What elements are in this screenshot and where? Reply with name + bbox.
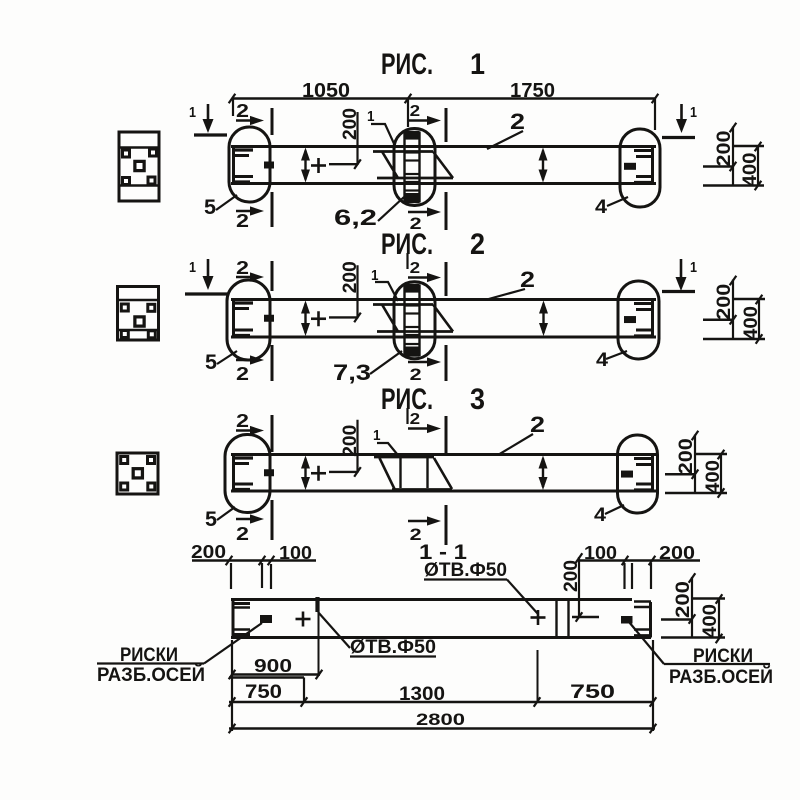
svg-text:400: 400 xyxy=(700,604,721,638)
svg-text:1: 1 xyxy=(690,104,697,121)
svg-text:7,3: 7,3 xyxy=(333,360,371,385)
svg-text:2: 2 xyxy=(510,109,525,134)
svg-text:900: 900 xyxy=(254,656,292,676)
svg-text:750: 750 xyxy=(570,682,615,703)
svg-text:200: 200 xyxy=(340,261,361,293)
svg-text:3: 3 xyxy=(470,383,485,416)
svg-text:200: 200 xyxy=(191,542,226,562)
svg-text:750: 750 xyxy=(245,682,282,703)
svg-text:400: 400 xyxy=(703,460,724,494)
svg-text:200: 200 xyxy=(673,581,694,618)
svg-text:400: 400 xyxy=(741,306,762,340)
svg-text:2: 2 xyxy=(236,524,249,544)
svg-text:1: 1 xyxy=(470,48,485,81)
svg-text:1: 1 xyxy=(690,259,697,276)
svg-text:РАЗБ.ОСЕЙ: РАЗБ.ОСЕЙ xyxy=(669,666,773,688)
svg-text:400: 400 xyxy=(740,153,761,187)
svg-text:2: 2 xyxy=(520,267,535,292)
svg-text:2: 2 xyxy=(410,214,422,233)
svg-text:200: 200 xyxy=(676,438,697,474)
svg-text:200: 200 xyxy=(714,131,735,167)
svg-text:2: 2 xyxy=(410,365,422,384)
svg-text:РИС.: РИС. xyxy=(381,48,433,81)
svg-text:ØТВ.Ф50: ØТВ.Ф50 xyxy=(424,560,507,581)
svg-text:5: 5 xyxy=(204,196,216,219)
svg-text:1: 1 xyxy=(189,104,196,121)
svg-text:4: 4 xyxy=(594,505,606,526)
svg-text:100: 100 xyxy=(279,543,312,563)
svg-text:2: 2 xyxy=(236,211,249,231)
svg-text:2: 2 xyxy=(236,411,249,431)
svg-text:1: 1 xyxy=(189,259,196,276)
svg-text:2: 2 xyxy=(410,411,421,428)
svg-text:200: 200 xyxy=(659,543,695,563)
svg-text:2: 2 xyxy=(236,101,249,121)
svg-text:100: 100 xyxy=(584,543,617,563)
svg-text:РАЗБ.ОСЕЙ: РАЗБ.ОСЕЙ xyxy=(97,664,205,686)
svg-text:200: 200 xyxy=(340,425,361,457)
svg-text:5: 5 xyxy=(205,508,217,531)
svg-text:1750: 1750 xyxy=(510,80,555,102)
svg-text:2: 2 xyxy=(470,228,485,261)
svg-text:2: 2 xyxy=(410,103,421,120)
svg-text:200: 200 xyxy=(340,108,361,140)
svg-text:4: 4 xyxy=(595,197,607,218)
svg-text:1050: 1050 xyxy=(302,80,350,102)
svg-text:2: 2 xyxy=(236,364,249,384)
svg-text:5: 5 xyxy=(205,351,217,374)
svg-text:200: 200 xyxy=(714,284,735,320)
svg-text:6,2: 6,2 xyxy=(334,205,377,230)
svg-text:4: 4 xyxy=(596,350,608,371)
svg-text:2800: 2800 xyxy=(416,710,465,729)
svg-text:2: 2 xyxy=(410,260,421,277)
svg-text:ØТВ.Ф50: ØТВ.Ф50 xyxy=(350,637,436,658)
svg-text:1: 1 xyxy=(373,427,381,444)
svg-text:1300: 1300 xyxy=(399,684,445,705)
svg-text:2: 2 xyxy=(236,258,249,278)
svg-text:1: 1 xyxy=(367,108,375,125)
